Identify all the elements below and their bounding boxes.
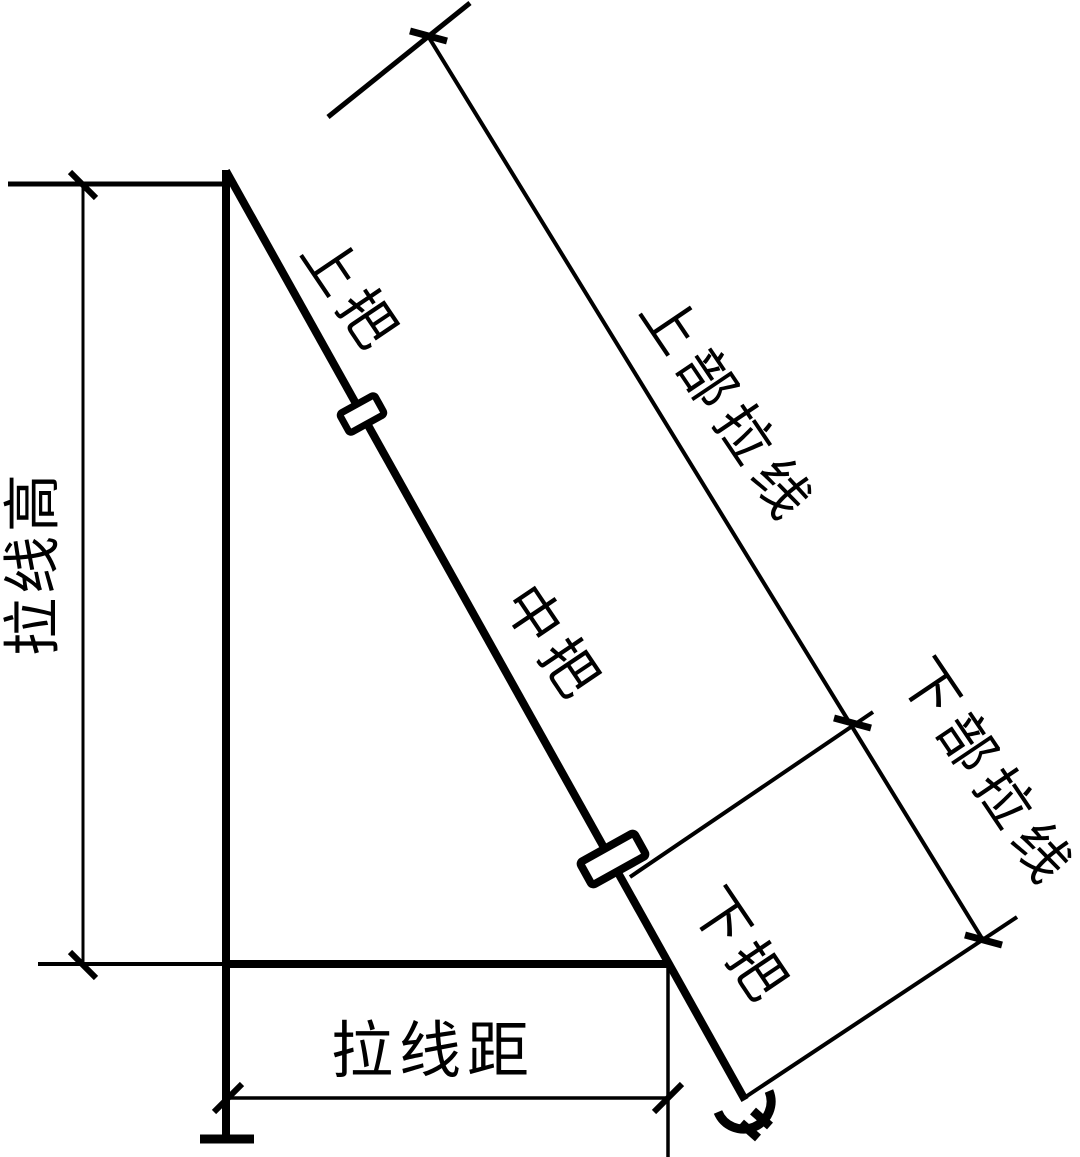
guy-wire-distance-label: 拉线距 xyxy=(331,1018,535,1086)
pole-group xyxy=(200,170,254,1140)
guy-wire-diagram: 拉线高 拉线距 上部拉线 下部拉线 上把 中把 xyxy=(0,0,1080,1157)
diagonal-extension-bottom xyxy=(747,917,1017,1096)
diagonal-extension-middle xyxy=(630,712,873,877)
diagonal-dimension-line xyxy=(428,36,983,940)
lower-grip-label: 下把 xyxy=(679,878,802,1019)
lower-guy-wire-label: 下部拉线 xyxy=(887,648,1080,902)
upper-wire-clamp xyxy=(339,395,385,434)
height-dimension: 拉线高 xyxy=(1,172,97,978)
diagonal-dim-tick-bottom xyxy=(965,935,1002,945)
diagram-canvas: 拉线高 拉线距 上部拉线 下部拉线 上把 中把 xyxy=(0,0,1080,1157)
diagonal-extension-top xyxy=(328,3,470,117)
guy-wire-height-label: 拉线高 xyxy=(1,470,66,656)
middle-grip-label: 中把 xyxy=(491,575,614,716)
upper-grip-label: 上把 xyxy=(289,226,412,367)
grip-labels: 上把 中把 下把 xyxy=(289,226,802,1019)
distance-dimension: 拉线距 xyxy=(214,964,682,1157)
lower-wire-clamp xyxy=(580,833,647,886)
diagonal-dim-tick-top xyxy=(410,31,447,41)
